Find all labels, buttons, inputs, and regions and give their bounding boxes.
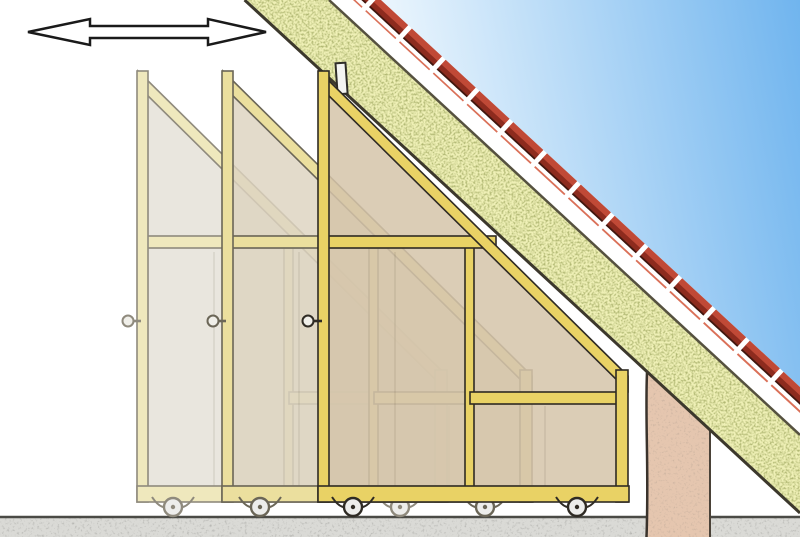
illustration-canvas (0, 0, 800, 537)
caster-axle (258, 505, 262, 509)
knob (303, 316, 314, 327)
caster-axle (398, 505, 402, 509)
attic-sliding-panels-illustration (0, 0, 800, 537)
panel-right-stile (616, 370, 628, 502)
panel-left-stile (318, 71, 329, 502)
caster-axle (351, 505, 355, 509)
caster-axle (575, 505, 579, 509)
knob (123, 316, 134, 327)
caster-axle (171, 505, 175, 509)
panel-left-stile (222, 71, 233, 502)
double-arrow-icon (28, 19, 266, 45)
post-left-edge (646, 373, 647, 537)
caster-axle (483, 505, 487, 509)
knob (208, 316, 219, 327)
panel-upper-rail (326, 236, 496, 248)
panel-left-stile (137, 71, 148, 502)
panel-mid-stile (465, 244, 474, 500)
panel-lower-rail (470, 392, 622, 404)
